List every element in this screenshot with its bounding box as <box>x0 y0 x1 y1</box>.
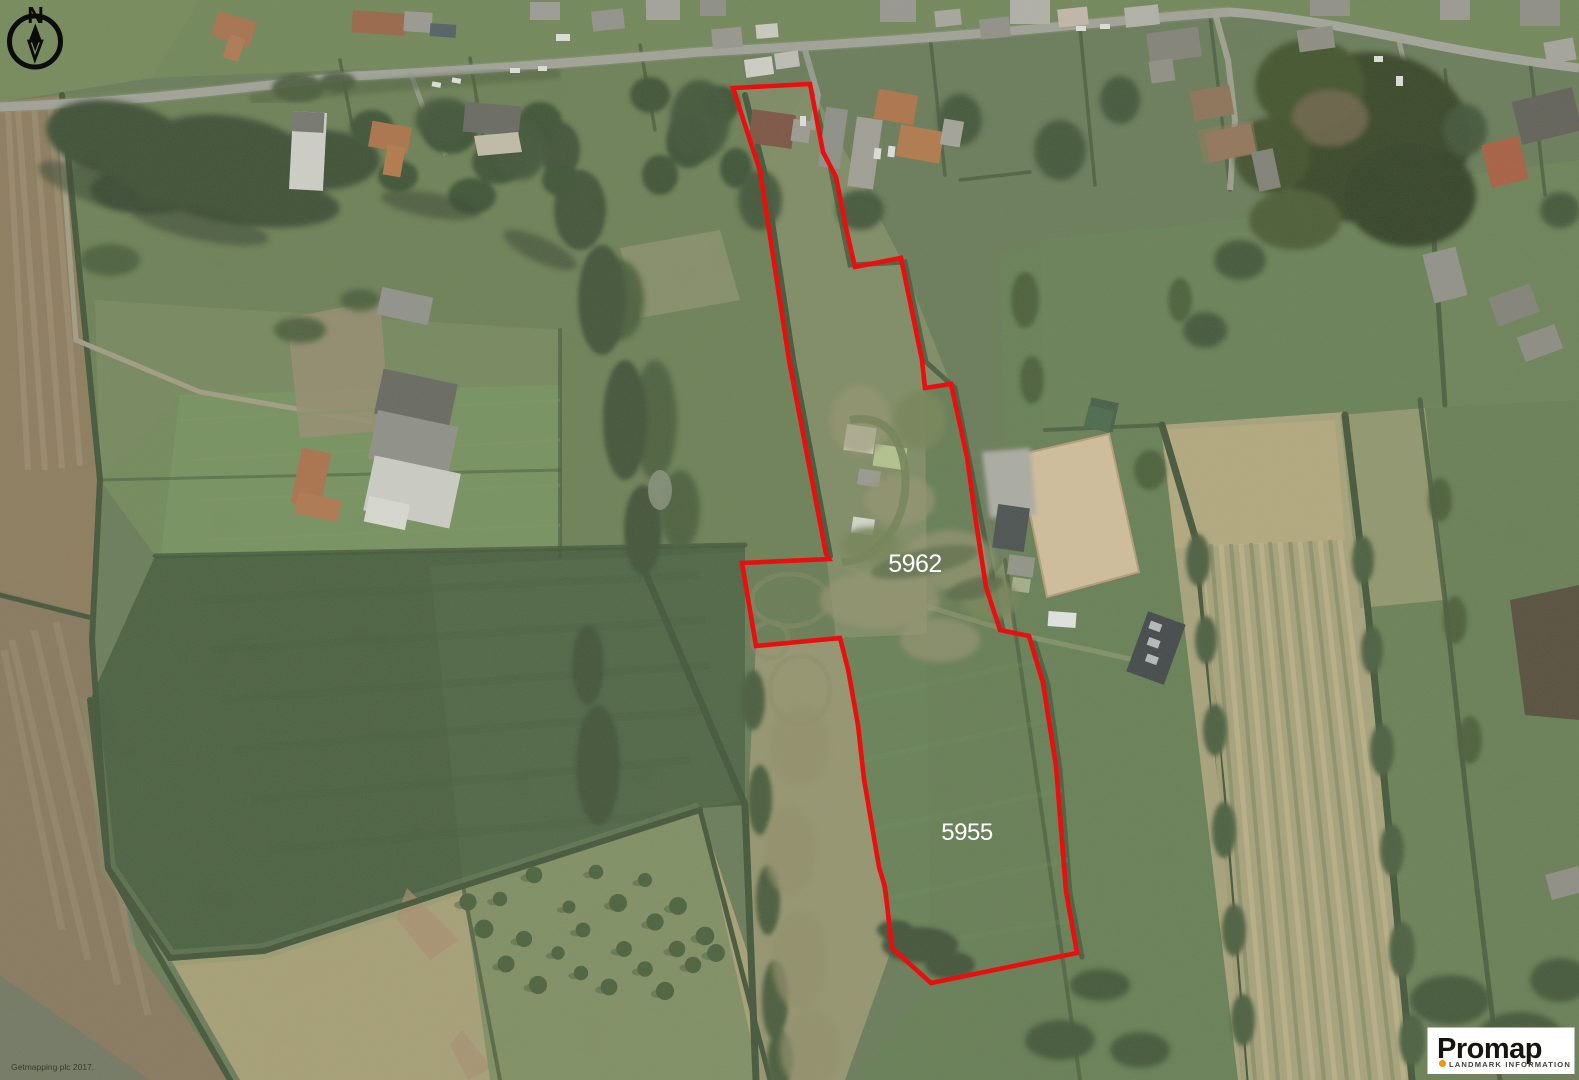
svg-text:LANDMARK INFORMATION: LANDMARK INFORMATION <box>1449 1060 1571 1069</box>
svg-text:Getmapping plc 2017.: Getmapping plc 2017. <box>11 1062 94 1072</box>
svg-text:5962: 5962 <box>888 550 942 578</box>
svg-text:5955: 5955 <box>941 819 993 846</box>
